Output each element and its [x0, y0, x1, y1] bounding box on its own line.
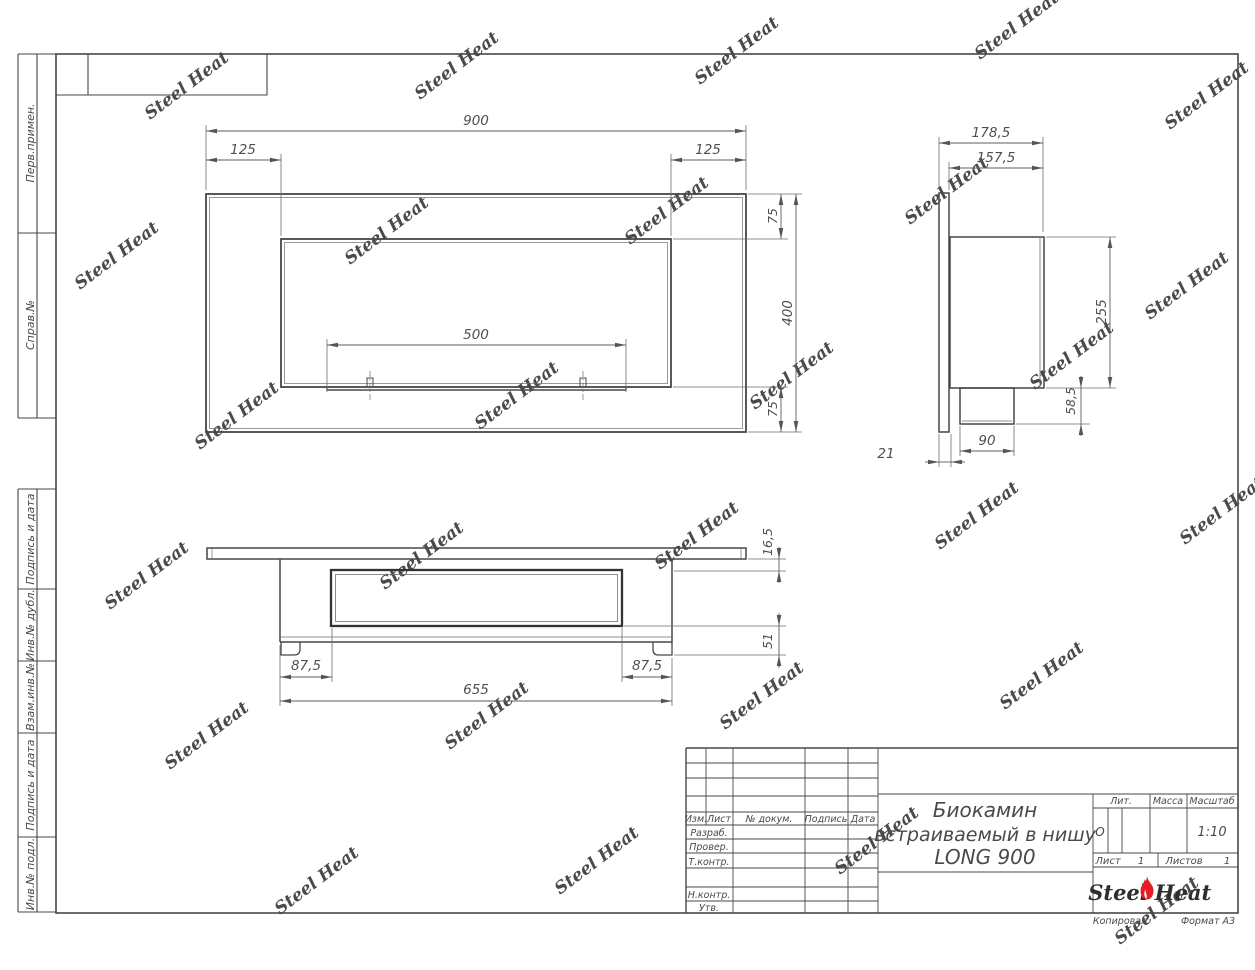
- watermark-text: Steel Heat: [191, 378, 283, 454]
- front-outer-panel: [206, 194, 746, 432]
- watermark-text: Steel Heat: [1176, 473, 1255, 549]
- dim-text-75-top: 75: [765, 208, 780, 224]
- sheets-label: Листов: [1164, 856, 1202, 867]
- dim-text-125-left: 125: [230, 142, 256, 158]
- doc-title-line-2: встраиваемый в нишу: [874, 824, 1096, 846]
- copied-label: Копировал: [1093, 916, 1147, 927]
- drawing-canvas: Steel HeatSteel HeatSteel HeatSteel Heat…: [0, 0, 1255, 970]
- th-podpis: Подпись: [805, 814, 848, 825]
- brand-steel-text: Steel: [1088, 880, 1148, 905]
- watermark-text: Steel Heat: [551, 823, 643, 899]
- watermark-text: Steel Heat: [71, 218, 163, 294]
- watermark-text: Steel Heat: [411, 28, 503, 104]
- strip-label-podpis-data-2: Подпись и дата: [24, 739, 37, 830]
- strip-label-sprav-no: Справ.№: [24, 300, 37, 350]
- mass-label: Масса: [1153, 796, 1183, 807]
- sheets-value: 1: [1224, 856, 1230, 867]
- dim-text-87-5-right: 87,5: [632, 658, 662, 674]
- strip-label-perv-primen: Перв.примен.: [24, 103, 37, 182]
- watermark-text: Steel Heat: [931, 478, 1023, 554]
- dim-text-500: 500: [463, 327, 489, 343]
- dim-text-178-5: 178,5: [972, 125, 1011, 141]
- watermark-text: Steel Heat: [161, 698, 253, 774]
- watermark-text: Steel Heat: [746, 338, 838, 414]
- watermark-text: Steel Heat: [271, 843, 363, 919]
- drawing-sheet: Steel HeatSteel HeatSteel HeatSteel Heat…: [0, 0, 1255, 970]
- brand-heat-text: Heat: [1154, 880, 1212, 905]
- lit-value: О: [1095, 825, 1104, 839]
- watermark-text: Steel Heat: [341, 193, 433, 269]
- watermark-text: Steel Heat: [621, 173, 713, 249]
- side-view-dimensions: 178,5 157,5 255 58,5 90 21: [877, 125, 1116, 467]
- scale-value: 1:10: [1197, 825, 1226, 840]
- watermark-text: Steel Heat: [101, 538, 193, 614]
- th-data: Дата: [850, 814, 876, 825]
- title-block: Изм. Лист № докум. Подпись Дата Разраб. …: [685, 748, 1238, 927]
- top-left-stamp-box: [56, 54, 267, 95]
- front-view: [206, 194, 746, 432]
- dim-text-51: 51: [760, 633, 775, 649]
- top-foot-right: [653, 642, 672, 655]
- lit-label: Лит.: [1109, 796, 1132, 807]
- row-prover: Провер.: [689, 842, 728, 853]
- row-razrab: Разраб.: [690, 828, 727, 839]
- dim-text-400: 400: [780, 300, 796, 326]
- watermark-text: Steel Heat: [651, 498, 743, 574]
- top-burner-box: [331, 570, 622, 626]
- doc-title-line-3: LONG 900: [934, 845, 1035, 869]
- top-foot-left: [281, 642, 300, 655]
- dim-text-87-5-left: 87,5: [291, 658, 321, 674]
- dim-text-16-5: 16,5: [760, 528, 775, 556]
- drawing-frame-border: [56, 54, 1238, 913]
- top-body: [280, 559, 672, 642]
- dim-text-900: 900: [463, 113, 489, 129]
- side-body: [950, 237, 1044, 388]
- front-opening-inner-edge: [285, 243, 668, 384]
- front-extension-lines: [206, 125, 802, 432]
- format-label: Формат А3: [1181, 916, 1235, 927]
- watermark-text: Steel Heat: [471, 358, 563, 434]
- watermark-text: Steel Heat: [1141, 248, 1233, 324]
- watermark-text: Steel Heat: [716, 658, 808, 734]
- doc-title-line-1: Биокамин: [933, 798, 1037, 822]
- dim-text-655: 655: [463, 682, 489, 698]
- row-nkontr: Н.контр.: [688, 890, 731, 901]
- row-tkontr: Т.контр.: [688, 857, 729, 868]
- watermark-text: Steel Heat: [691, 13, 783, 89]
- dim-text-255: 255: [1094, 299, 1110, 325]
- dim-text-125-right: 125: [695, 142, 721, 158]
- dim-text-157-5: 157,5: [977, 150, 1016, 166]
- sheet-label: Лист: [1094, 856, 1122, 867]
- watermark-text: Steel Heat: [376, 518, 468, 594]
- strip-label-vzam-inv: Взам.инв.№: [24, 663, 37, 731]
- scale-label: Масштаб: [1189, 796, 1234, 807]
- th-list: Лист: [706, 814, 732, 825]
- th-doc-num: № докум.: [745, 814, 793, 825]
- dim-text-21: 21: [877, 446, 894, 462]
- top-view-dimensions: 87,5 87,5 655 16,5 51: [280, 528, 786, 706]
- brand-logo: Steel Heat: [1088, 876, 1211, 905]
- sheet-value: 1: [1138, 856, 1144, 867]
- watermark-text: Steel Heat: [996, 638, 1088, 714]
- watermark-text: Steel Heat: [1161, 58, 1253, 134]
- strip-label-inv-podl: Инв.№ подл.: [24, 838, 37, 910]
- dim-text-75-bottom: 75: [765, 401, 780, 417]
- side-front-flange: [939, 193, 949, 432]
- strip-label-inv-dubl: Инв.№ дубл.: [24, 589, 37, 661]
- sheet-frame: Перв.примен. Справ.№ Подпись и дата Инв.…: [18, 54, 1238, 913]
- strip-label-podpis-data-1: Подпись и дата: [24, 493, 37, 584]
- watermark-text: Steel Heat: [141, 48, 233, 124]
- side-burner-tray: [960, 388, 1014, 424]
- top-extension-lines: [280, 559, 786, 706]
- front-view-dimensions: 900 125 125 500 75 400 75: [206, 113, 802, 432]
- dim-text-58-5: 58,5: [1063, 387, 1078, 415]
- row-utv: Утв.: [699, 903, 719, 914]
- front-opening: [281, 239, 671, 387]
- th-izm: Изм.: [685, 814, 707, 825]
- side-view: [939, 193, 1044, 432]
- front-outer-panel-inner-edge: [210, 198, 743, 429]
- dim-text-90: 90: [978, 433, 995, 449]
